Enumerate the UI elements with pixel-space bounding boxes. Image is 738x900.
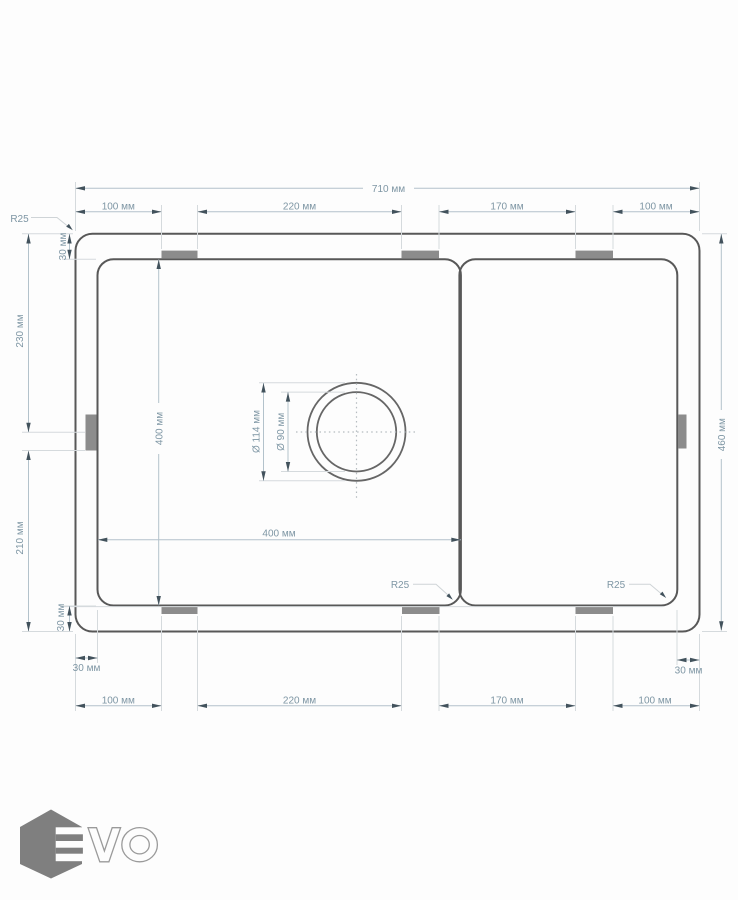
svg-text:460 мм: 460 мм (717, 418, 728, 451)
svg-text:R25: R25 (391, 580, 410, 591)
svg-text:Ø 114 мм: Ø 114 мм (252, 410, 263, 453)
svg-text:100 мм: 100 мм (638, 696, 671, 707)
svg-text:R25: R25 (607, 580, 626, 591)
svg-text:30 мм: 30 мм (56, 604, 67, 632)
svg-text:R25: R25 (10, 214, 29, 225)
svg-text:400 мм: 400 мм (155, 412, 166, 445)
svg-text:100 мм: 100 мм (102, 202, 135, 213)
svg-text:Ø 90 мм: Ø 90 мм (276, 413, 287, 451)
svg-text:710 мм: 710 мм (372, 184, 405, 195)
svg-text:30 мм: 30 мм (675, 666, 703, 677)
svg-text:400 мм: 400 мм (262, 529, 295, 540)
svg-text:170 мм: 170 мм (490, 696, 523, 707)
svg-text:230 мм: 230 мм (15, 314, 26, 347)
svg-text:100 мм: 100 мм (639, 202, 672, 213)
svg-text:220 мм: 220 мм (283, 696, 316, 707)
svg-text:170 мм: 170 мм (490, 202, 523, 213)
svg-text:210 мм: 210 мм (15, 521, 26, 554)
svg-text:30 мм: 30 мм (58, 233, 69, 261)
svg-text:30 мм: 30 мм (73, 663, 101, 674)
svg-text:100 мм: 100 мм (102, 696, 135, 707)
svg-text:220 мм: 220 мм (283, 202, 316, 213)
